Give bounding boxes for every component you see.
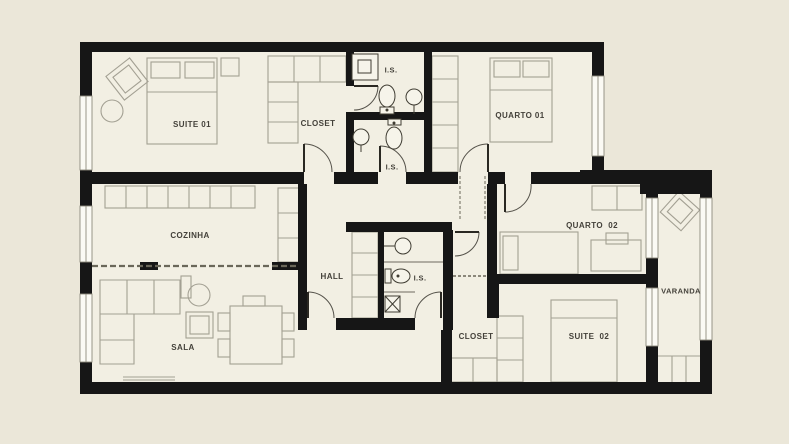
room-label-quarto-02: QUARTO 02 — [566, 222, 618, 230]
room-label-quarto-01: QUARTO 01 — [495, 112, 544, 120]
room-label-closet-bottom: CLOSET — [459, 333, 494, 341]
window-suite02-varanda — [646, 288, 658, 346]
window-quarto01-east — [592, 76, 604, 156]
room-label-cozinha: COZINHA — [170, 232, 209, 240]
toilet-icon — [379, 85, 395, 114]
shower-icon — [352, 54, 378, 80]
room-label-is-central: I.S. — [414, 274, 427, 282]
window-cozinha-west — [80, 206, 92, 262]
room-label-suite-02: SUITE 02 — [569, 333, 610, 341]
room-label-is-mid: I.S. — [386, 163, 399, 171]
toilet-icon — [386, 119, 402, 149]
room-label-closet-top: CLOSET — [301, 120, 336, 128]
window-suite01-west — [80, 96, 92, 170]
room-label-is-top: I.S. — [385, 66, 398, 74]
floor-plan-canvas: SUITE 01 CLOSET I.S. I.S. QUARTO 01 COZI… — [0, 0, 789, 444]
varanda-railing — [700, 198, 712, 340]
room-label-sala: SALA — [171, 344, 194, 352]
toilet-icon — [385, 269, 410, 283]
room-label-suite-01: SUITE 01 — [173, 121, 211, 129]
window-quarto02-varanda — [646, 198, 658, 258]
room-label-hall: HALL — [321, 273, 344, 281]
room-label-varanda: VARANDA — [661, 287, 701, 295]
washer-icon — [385, 296, 400, 312]
window-sala-west — [80, 294, 92, 362]
